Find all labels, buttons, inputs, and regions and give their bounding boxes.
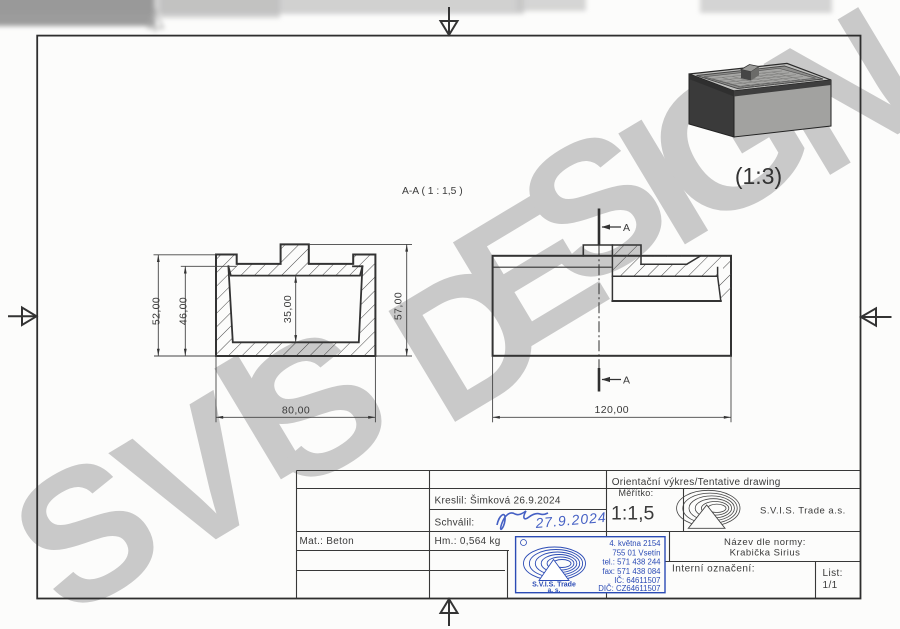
svg-text:Měřítko:: Měřítko: <box>619 488 654 498</box>
svg-text:46,00: 46,00 <box>177 297 189 325</box>
svg-text:tel.: 571 438 244: tel.: 571 438 244 <box>602 558 661 567</box>
svg-text:Orientační výkres/Tentative dr: Orientační výkres/Tentative drawing <box>612 477 781 488</box>
svg-text:S.V.I.S. Trade a.s.: S.V.I.S. Trade a.s. <box>760 506 846 517</box>
svg-text:Schválil:: Schválil: <box>435 518 475 529</box>
svg-text:755 01 Vsetín: 755 01 Vsetín <box>612 548 660 557</box>
svg-text:a. s.: a. s. <box>548 587 561 594</box>
svg-text:27.9.2024: 27.9.2024 <box>534 509 607 531</box>
svg-text:57,00: 57,00 <box>393 292 405 320</box>
svg-text:80,00: 80,00 <box>282 405 310 417</box>
svg-text:1/1: 1/1 <box>823 580 838 591</box>
svg-text:Krabička Sirius: Krabička Sirius <box>730 548 801 559</box>
svg-text:1:1,5: 1:1,5 <box>611 503 655 525</box>
svg-text:A-A ( 1 : 1,5 ): A-A ( 1 : 1,5 ) <box>402 186 463 197</box>
svg-text:Mat.: Beton: Mat.: Beton <box>300 536 354 547</box>
svg-text:A: A <box>623 375 630 387</box>
svg-text:A: A <box>623 222 630 234</box>
svg-text:Interní označení:: Interní označení: <box>672 564 755 575</box>
svg-text:35,00: 35,00 <box>282 295 294 323</box>
svg-text:Kreslil: Šimková 26.9.2024: Kreslil: Šimková 26.9.2024 <box>435 494 561 507</box>
svg-text:DIČ: CZ64611507: DIČ: CZ64611507 <box>598 584 660 593</box>
svg-text:fax: 571 438 084: fax: 571 438 084 <box>602 567 661 576</box>
svg-text:Název dle normy:: Název dle normy: <box>724 537 806 548</box>
svg-text:List:: List: <box>823 568 843 579</box>
svg-text:Hm.: 0,564 kg: Hm.: 0,564 kg <box>435 536 501 547</box>
svg-text:52,00: 52,00 <box>150 297 162 325</box>
svg-text:(1:3): (1:3) <box>735 163 782 189</box>
svg-text:120,00: 120,00 <box>595 404 630 416</box>
svg-text:4. května 2154: 4. května 2154 <box>609 539 661 548</box>
